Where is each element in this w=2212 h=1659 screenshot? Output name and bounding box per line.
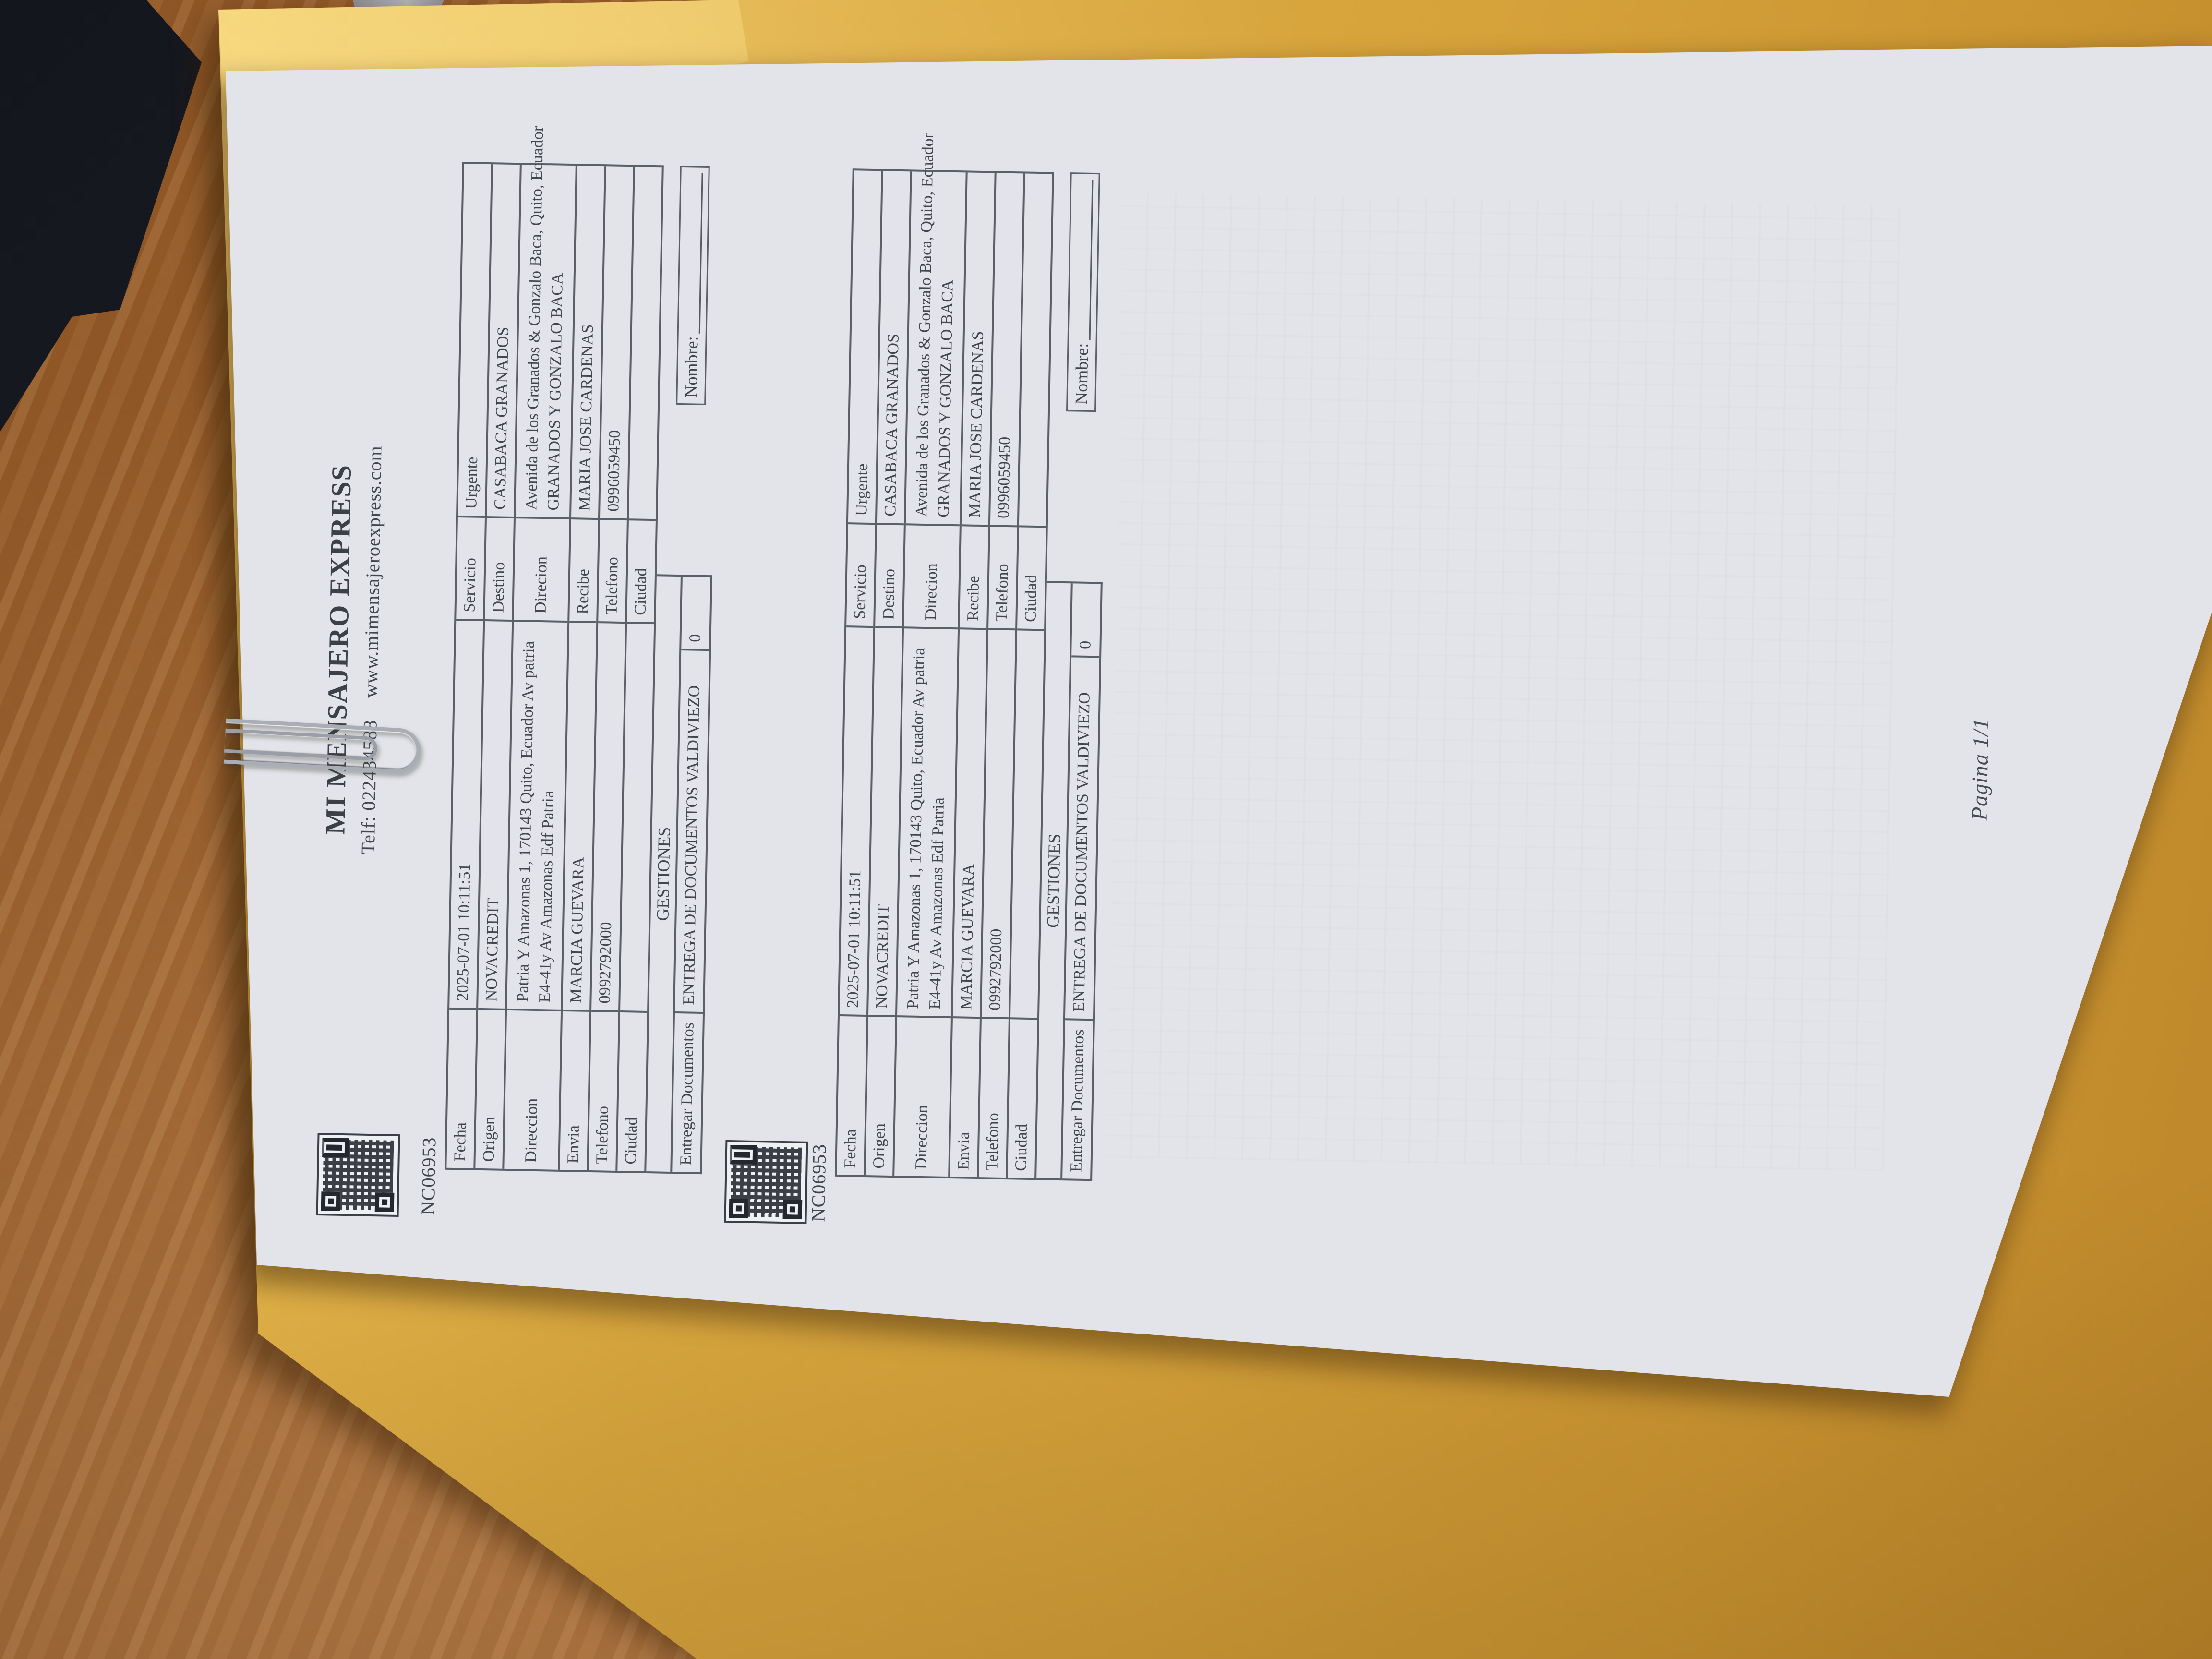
- ciudad-origen-label: Ciudad: [619, 1012, 646, 1171]
- recibe-label: Recibe: [960, 526, 988, 630]
- waybill-copy-2: NC06953 Fecha 2025-07-01 10:11:51 Servic…: [714, 167, 1116, 1181]
- direccion-destino-value: Avenida de los Granados & Gonzalo Baca, …: [906, 126, 967, 526]
- ciudad-destino-value: [1019, 174, 1052, 528]
- direccion-origen-value: Patria Y Amazonas 1, 170143 Quito, Ecuad…: [507, 622, 567, 1011]
- destino-label: Destino: [875, 525, 904, 628]
- show-through: [1106, 192, 1900, 1171]
- page-indicator: Pagina 1/1: [1958, 251, 2002, 1288]
- servicio-label: Servicio: [456, 517, 485, 621]
- direccion-origen-label: Direccion: [519, 1010, 546, 1169]
- qr-code: [316, 1133, 400, 1217]
- servicio-label: Servicio: [846, 524, 875, 628]
- waybill-document: MI MENSAJERO EXPRESS Telf: 022434588www.…: [259, 67, 2212, 1291]
- ciudad-destino-label: Ciudad: [627, 520, 656, 624]
- gestiones-subtable: GESTIONES Entregar Documentos ENTREGA DE…: [1036, 581, 1103, 1181]
- telefono-origen-label: Telefono: [590, 1012, 617, 1171]
- envia-label: Envia: [951, 1018, 978, 1177]
- destino-label: Destino: [485, 518, 514, 622]
- recibe-label: Recibe: [569, 519, 598, 623]
- entregar-qty: 0: [681, 577, 710, 651]
- company-website: www.mimensajeroexpress.com: [360, 445, 385, 698]
- gestiones-subtable: GESTIONES Entregar Documentos ENTREGA DE…: [646, 574, 712, 1174]
- ciudad-destino-value: [629, 167, 662, 521]
- entregar-label: Entregar Documentos: [1066, 1020, 1089, 1179]
- nombre-blank-line: [684, 173, 703, 334]
- entregar-qty: 0: [1071, 583, 1101, 658]
- direccion-destino-label: Direcion: [514, 518, 569, 623]
- entregar-label: Entregar Documentos: [676, 1013, 699, 1172]
- nombre-label: Nombre:: [1071, 343, 1092, 405]
- ciudad-origen-value: [1010, 630, 1044, 1020]
- direccion-destino-value: Avenida de los Granados & Gonzalo Baca, …: [516, 119, 577, 519]
- telefono-destino-label: Telefono: [988, 527, 1017, 630]
- origen-label: Origen: [867, 1017, 894, 1176]
- copy2-header-row: [714, 167, 817, 1176]
- fecha-label: Fecha: [448, 1010, 475, 1168]
- ciudad-origen-value: [620, 624, 654, 1013]
- origen-label: Origen: [477, 1010, 504, 1169]
- qr-code: [724, 1140, 808, 1224]
- fecha-label: Fecha: [838, 1016, 865, 1175]
- ciudad-destino-label: Ciudad: [1017, 527, 1046, 631]
- entregar-value: ENTREGA DE DOCUMENTOS VALDIVIEZO: [675, 650, 709, 1014]
- waybill-table: Fecha 2025-07-01 10:11:51 Servicio Urgen…: [835, 168, 1054, 1180]
- direccion-origen-label: Direccion: [909, 1018, 936, 1177]
- telefono-destino-label: Telefono: [598, 520, 627, 624]
- company-header: MI MENSAJERO EXPRESS Telf: 022434588www.…: [306, 159, 391, 1168]
- waybill-table: Fecha 2025-07-01 10:11:51 Servicio Urgen…: [445, 162, 664, 1173]
- copy1-header-row: MI MENSAJERO EXPRESS Telf: 022434588www.…: [306, 159, 427, 1169]
- entregar-value: ENTREGA DE DOCUMENTOS VALDIVIEZO: [1065, 657, 1099, 1021]
- waybill-copy-1: MI MENSAJERO EXPRESS Telf: 022434588www.…: [261, 158, 725, 1174]
- envia-label: Envia: [561, 1011, 588, 1170]
- direccion-destino-label: Direcion: [904, 525, 960, 629]
- photo-scene: MI MENSAJERO EXPRESS Telf: 022434588www.…: [0, 0, 2212, 1659]
- telefono-origen-label: Telefono: [980, 1019, 1007, 1178]
- nombre-field: Nombre:: [1066, 172, 1100, 412]
- nombre-blank-line: [1074, 180, 1094, 340]
- ciudad-origen-label: Ciudad: [1009, 1019, 1036, 1178]
- direccion-origen-value: Patria Y Amazonas 1, 170143 Quito, Ecuad…: [897, 628, 958, 1018]
- nombre-label: Nombre:: [681, 336, 702, 398]
- nombre-field: Nombre:: [676, 166, 710, 405]
